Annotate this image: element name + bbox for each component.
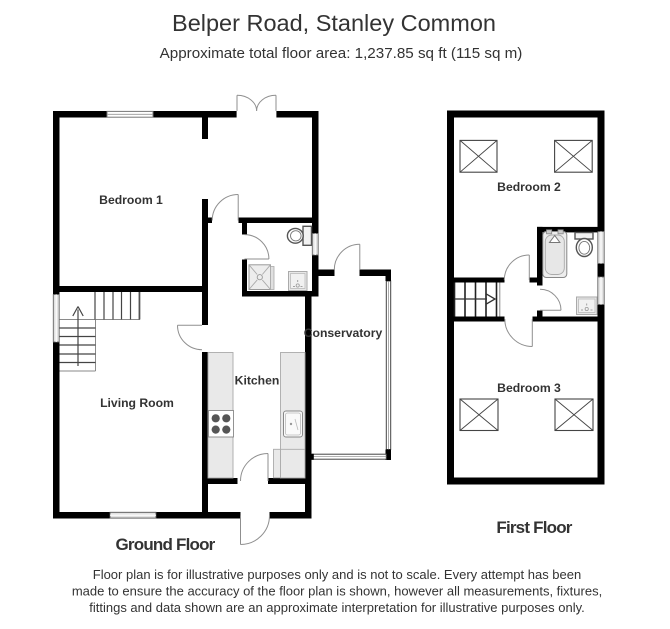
svg-text:Floor plan is for illustrative: Floor plan is for illustrative purposes … <box>93 567 581 582</box>
svg-text:made to ensure the accuracy of: made to ensure the accuracy of the floor… <box>72 584 602 599</box>
svg-text:Bedroom 2: Bedroom 2 <box>497 180 561 194</box>
svg-text:Kitchen: Kitchen <box>235 374 280 388</box>
svg-text:Bedroom 3: Bedroom 3 <box>497 381 561 395</box>
svg-text:Bedroom 1: Bedroom 1 <box>99 193 163 207</box>
svg-text:First Floor: First Floor <box>496 518 572 537</box>
svg-text:fittings and data shown are an: fittings and data shown are an approxima… <box>89 600 584 615</box>
svg-text:Living Room: Living Room <box>100 396 174 410</box>
svg-text:Ground Floor: Ground Floor <box>116 535 216 554</box>
svg-text:Approximate total floor area:: Approximate total floor area: 1,237.85 s… <box>160 45 523 62</box>
svg-text:Conservatory: Conservatory <box>304 326 383 340</box>
svg-text:Belper Road, Stanley Common: Belper Road, Stanley Common <box>172 10 496 36</box>
